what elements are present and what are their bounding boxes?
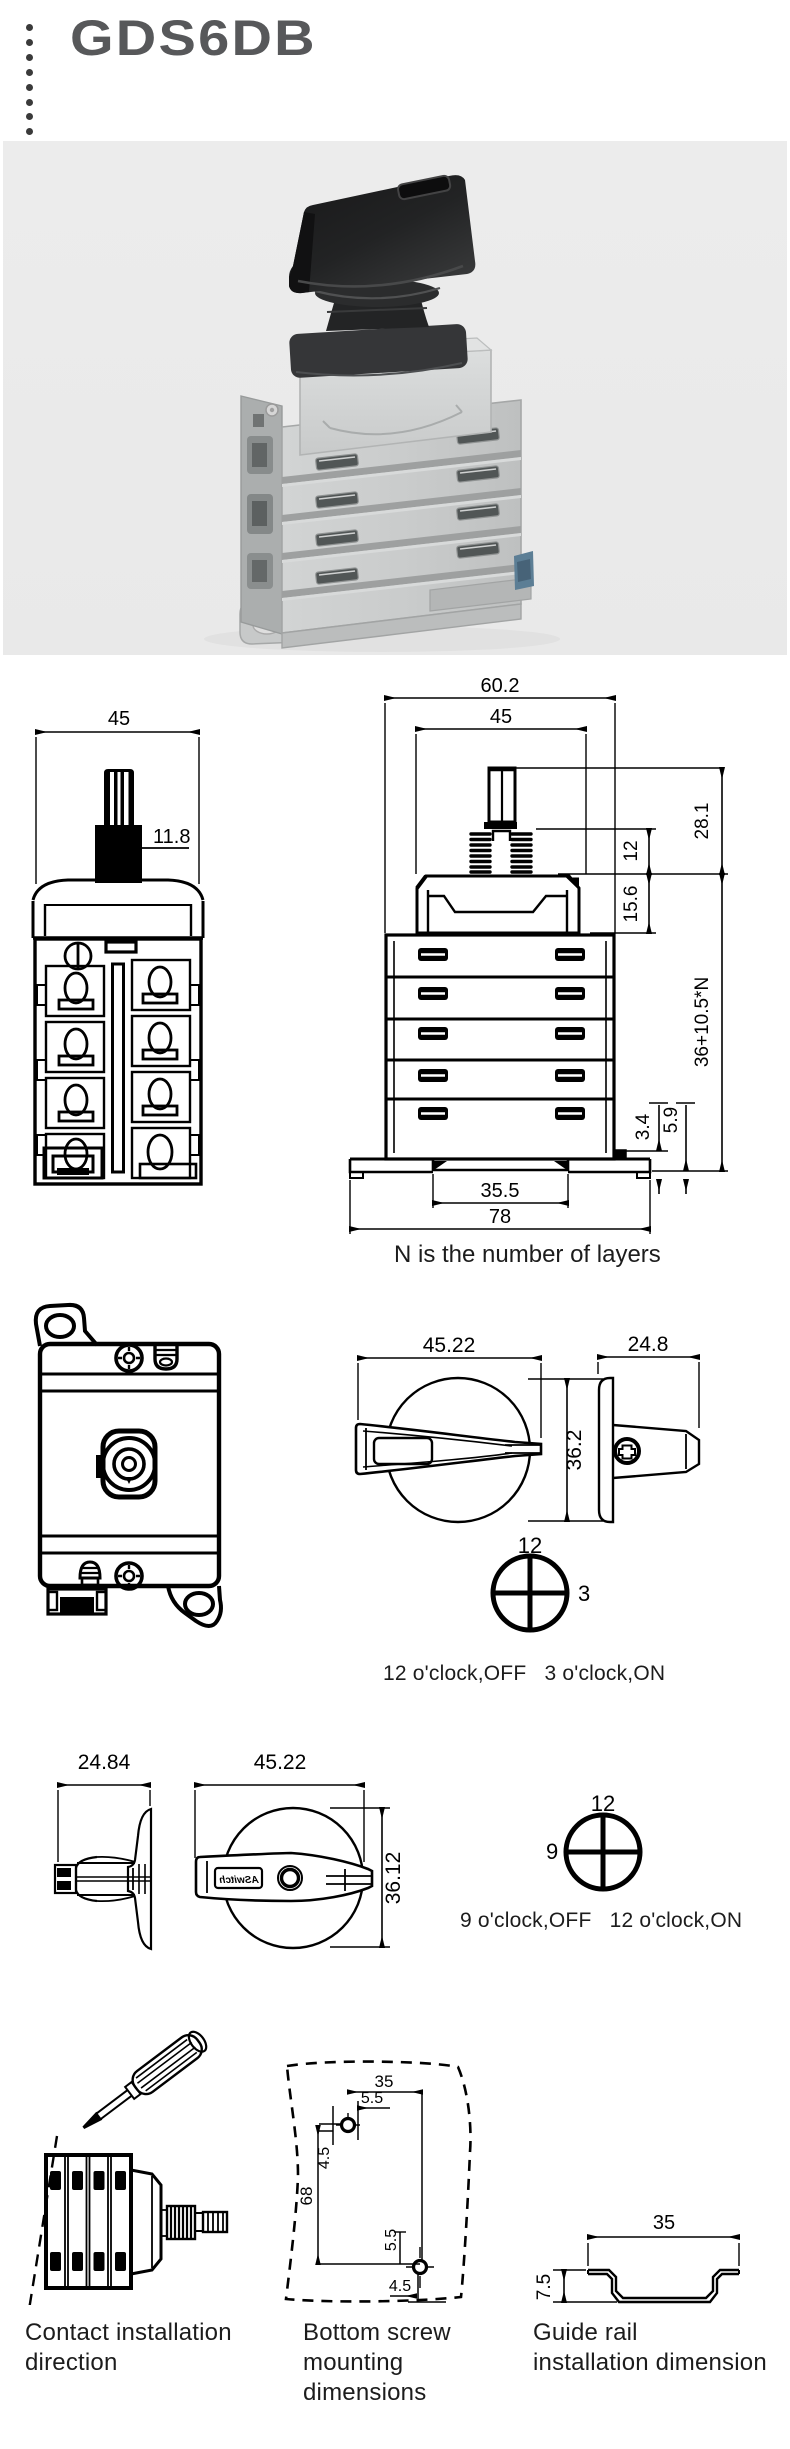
svg-text:78: 78 (489, 1206, 511, 1228)
svg-text:35.5: 35.5 (481, 1180, 520, 1202)
svg-text:35: 35 (653, 2212, 675, 2234)
svg-text:3.4: 3.4 (633, 1113, 654, 1140)
svg-text:15.6: 15.6 (621, 886, 642, 923)
svg-text:12: 12 (591, 1791, 615, 1816)
svg-text:ASwitch: ASwitch (219, 1875, 259, 1886)
svg-text:3: 3 (578, 1581, 590, 1606)
svg-text:45.22: 45.22 (254, 1751, 307, 1774)
svg-text:45.22: 45.22 (423, 1335, 476, 1357)
svg-text:36+10.5*N: 36+10.5*N (692, 977, 713, 1067)
svg-text:7.5: 7.5 (534, 2274, 555, 2300)
svg-text:5.5: 5.5 (361, 2090, 383, 2107)
svg-text:68: 68 (297, 2187, 316, 2206)
svg-text:45: 45 (490, 706, 512, 728)
svg-text:28.1: 28.1 (692, 803, 713, 840)
svg-text:24.8: 24.8 (628, 1335, 669, 1356)
svg-text:5.9: 5.9 (661, 1107, 682, 1133)
svg-text:4.5: 4.5 (389, 2278, 411, 2295)
svg-text:11.8: 11.8 (153, 826, 190, 848)
svg-text:24.84: 24.84 (78, 1751, 131, 1774)
svg-text:9: 9 (546, 1839, 558, 1864)
svg-text:35: 35 (375, 2072, 394, 2091)
svg-text:45: 45 (108, 708, 130, 730)
svg-text:12: 12 (518, 1535, 542, 1558)
svg-text:60.2: 60.2 (481, 675, 520, 697)
svg-text:36.12: 36.12 (382, 1852, 405, 1905)
svg-text:12: 12 (621, 840, 642, 861)
